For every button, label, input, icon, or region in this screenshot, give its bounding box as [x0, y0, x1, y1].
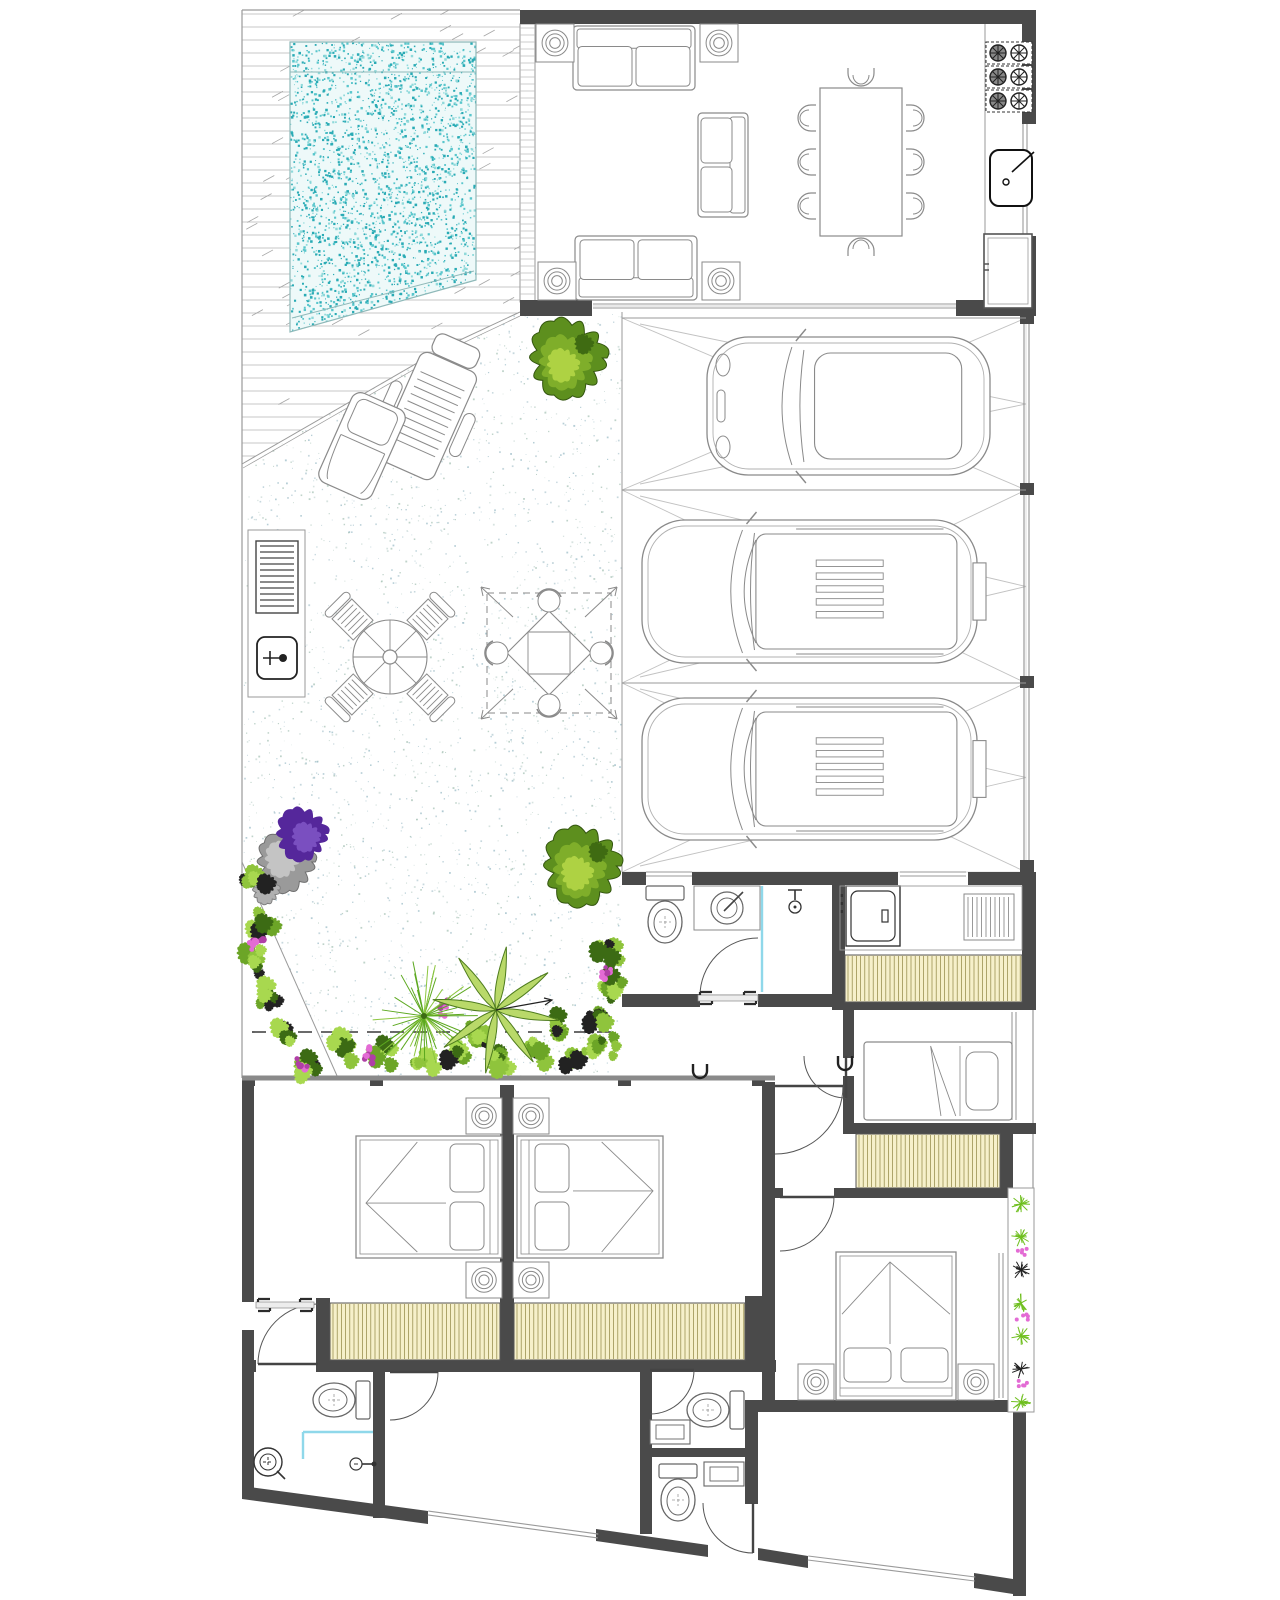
lt	[466, 1262, 502, 1298]
shrub-cluster	[586, 1031, 622, 1061]
closet	[514, 1303, 745, 1360]
door	[804, 1056, 846, 1098]
toilet	[313, 1381, 370, 1419]
vanity	[704, 1462, 744, 1486]
shrub-cluster	[410, 1046, 443, 1077]
lt	[538, 262, 576, 300]
floor-plan-canvas	[0, 0, 1280, 1600]
sofa	[698, 113, 748, 217]
lt	[702, 262, 740, 300]
lt	[466, 1098, 502, 1134]
bedD	[517, 1136, 663, 1258]
vanity	[650, 1420, 690, 1444]
door	[390, 1372, 438, 1420]
shower	[788, 890, 802, 913]
lt	[958, 1364, 994, 1400]
closet	[856, 1134, 1000, 1188]
roundset	[324, 591, 457, 724]
sliding-door	[256, 1299, 314, 1311]
basin	[694, 886, 760, 930]
car-suv	[642, 690, 986, 848]
lt	[700, 24, 738, 62]
closet	[845, 955, 1022, 1002]
floor-plan	[0, 0, 1280, 1600]
sofa	[575, 236, 697, 300]
lt	[513, 1098, 549, 1134]
swimming-pool	[290, 42, 478, 334]
door	[258, 1304, 318, 1364]
tree	[530, 317, 609, 400]
bedD	[356, 1136, 502, 1258]
bedD	[836, 1252, 956, 1400]
door	[703, 1503, 753, 1553]
osink	[257, 637, 297, 679]
toilet	[659, 1464, 697, 1521]
sliding-door	[698, 992, 758, 1004]
toilet	[646, 886, 684, 943]
shrub-cluster	[549, 1006, 569, 1042]
tree	[544, 825, 623, 908]
vehicles-layer	[642, 329, 990, 848]
side-planter	[1008, 1188, 1034, 1412]
shrub-cluster	[581, 1006, 615, 1035]
lt	[536, 24, 574, 62]
lt	[798, 1364, 834, 1400]
sofa	[573, 26, 695, 90]
shrub-cluster	[558, 1047, 590, 1075]
door	[700, 938, 758, 996]
grill	[256, 541, 298, 613]
car-beetle	[707, 329, 990, 483]
sailset	[481, 587, 617, 719]
grate	[964, 894, 1014, 940]
door	[780, 1197, 834, 1251]
drain	[254, 1448, 285, 1479]
lt	[513, 1262, 549, 1298]
bedS	[864, 1042, 1012, 1120]
toilet	[687, 1391, 744, 1429]
stove	[986, 42, 1032, 112]
fridge	[984, 234, 1032, 308]
car-suv	[642, 512, 986, 671]
ksink	[990, 150, 1034, 206]
closet	[330, 1303, 500, 1360]
washer	[840, 886, 900, 946]
faucet	[350, 1458, 377, 1470]
shrub-cluster	[588, 937, 626, 968]
dining	[798, 68, 924, 256]
